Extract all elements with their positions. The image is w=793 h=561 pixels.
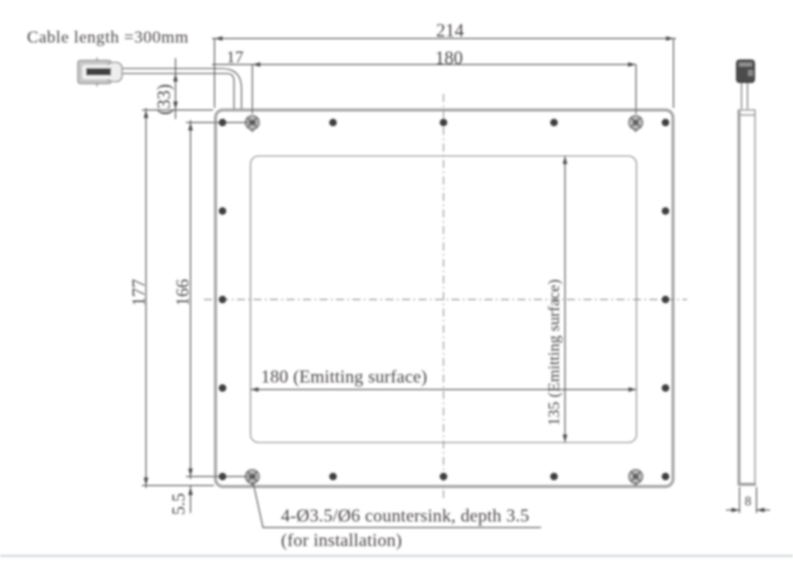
svg-text:180: 180 (435, 49, 463, 69)
svg-text:8: 8 (745, 494, 752, 509)
svg-text:4-Ø3.5/Ø6 countersink, depth 3: 4-Ø3.5/Ø6 countersink, depth 3.5 (281, 506, 529, 526)
svg-text:5.5: 5.5 (169, 493, 189, 515)
svg-text:177: 177 (129, 279, 149, 306)
svg-text:(for installation): (for installation) (281, 530, 402, 551)
svg-text:214: 214 (436, 22, 464, 42)
svg-text:17: 17 (227, 48, 245, 67)
svg-text:166: 166 (173, 279, 193, 306)
svg-text:180 (Emitting surface): 180 (Emitting surface) (261, 367, 427, 388)
svg-text:Cable length =300mm: Cable length =300mm (27, 28, 189, 47)
svg-text:135 (Emitting surface): 135 (Emitting surface) (545, 279, 563, 426)
